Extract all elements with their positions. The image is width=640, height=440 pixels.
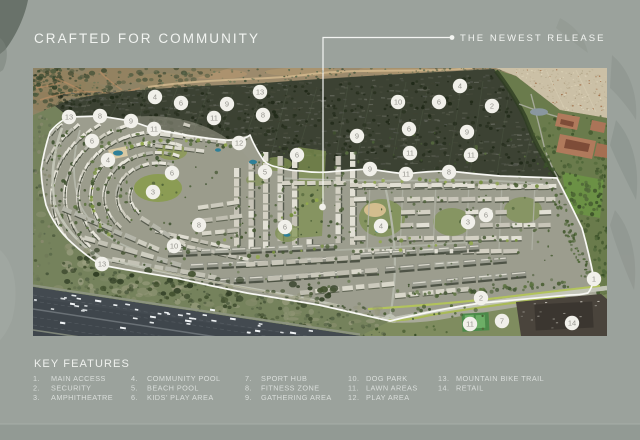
svg-text:8.: 8. xyxy=(245,384,252,393)
svg-text:BEACH POOL: BEACH POOL xyxy=(147,384,199,393)
svg-text:9.: 9. xyxy=(245,393,252,402)
svg-text:4: 4 xyxy=(153,93,157,102)
svg-text:6: 6 xyxy=(283,223,287,232)
svg-text:6: 6 xyxy=(437,98,441,107)
svg-text:12: 12 xyxy=(235,139,243,148)
svg-text:RETAIL: RETAIL xyxy=(456,384,484,393)
svg-text:SECURITY: SECURITY xyxy=(51,384,92,393)
svg-text:13.: 13. xyxy=(438,374,450,383)
svg-text:6: 6 xyxy=(484,211,488,220)
svg-text:11: 11 xyxy=(210,114,218,123)
svg-text:KIDS’ PLAY AREA: KIDS’ PLAY AREA xyxy=(147,393,214,402)
svg-text:1.: 1. xyxy=(33,374,40,383)
svg-text:6: 6 xyxy=(90,137,94,146)
svg-text:6: 6 xyxy=(170,169,174,178)
svg-text:10: 10 xyxy=(394,98,402,107)
svg-text:CRAFTED FOR COMMUNITY: CRAFTED FOR COMMUNITY xyxy=(34,31,260,46)
svg-text:GATHERING AREA: GATHERING AREA xyxy=(261,393,332,402)
svg-text:4: 4 xyxy=(379,222,383,231)
svg-text:3: 3 xyxy=(466,218,470,227)
svg-text:4: 4 xyxy=(458,82,462,91)
svg-text:2: 2 xyxy=(479,294,483,303)
svg-text:13: 13 xyxy=(256,88,264,97)
svg-text:11: 11 xyxy=(406,149,414,158)
svg-text:6.: 6. xyxy=(131,393,138,402)
svg-text:4: 4 xyxy=(106,156,110,165)
svg-text:LAWN AREAS: LAWN AREAS xyxy=(366,384,418,393)
svg-text:7.: 7. xyxy=(245,374,252,383)
svg-text:AMPHITHEATRE: AMPHITHEATRE xyxy=(51,393,113,402)
svg-text:MOUNTAIN BIKE TRAIL: MOUNTAIN BIKE TRAIL xyxy=(456,374,544,383)
svg-text:KEY FEATURES: KEY FEATURES xyxy=(34,358,130,370)
svg-text:11: 11 xyxy=(402,170,410,179)
svg-text:5: 5 xyxy=(263,168,267,177)
svg-text:1: 1 xyxy=(592,275,596,284)
svg-text:11: 11 xyxy=(466,320,474,329)
svg-text:3: 3 xyxy=(151,188,155,197)
svg-text:9: 9 xyxy=(225,100,229,109)
svg-text:13: 13 xyxy=(65,113,73,122)
svg-text:10: 10 xyxy=(170,242,178,251)
svg-text:11: 11 xyxy=(467,151,475,160)
svg-text:COMMUNITY POOL: COMMUNITY POOL xyxy=(147,374,220,383)
svg-text:2: 2 xyxy=(490,102,494,111)
svg-text:12.: 12. xyxy=(348,393,360,402)
svg-text:7: 7 xyxy=(500,317,504,326)
svg-text:THE NEWEST RELEASE: THE NEWEST RELEASE xyxy=(460,33,605,44)
svg-text:8: 8 xyxy=(447,168,451,177)
svg-text:9: 9 xyxy=(129,117,133,126)
svg-text:11.: 11. xyxy=(348,384,359,393)
svg-text:5.: 5. xyxy=(131,384,138,393)
svg-text:6: 6 xyxy=(407,125,411,134)
svg-text:3.: 3. xyxy=(33,393,40,402)
svg-text:4.: 4. xyxy=(131,374,138,383)
svg-text:14.: 14. xyxy=(438,384,450,393)
svg-text:8: 8 xyxy=(261,111,265,120)
svg-text:10.: 10. xyxy=(348,374,360,383)
svg-text:8: 8 xyxy=(197,221,201,230)
svg-text:9: 9 xyxy=(368,165,372,174)
svg-text:6: 6 xyxy=(295,151,299,160)
svg-text:MAIN ACCESS: MAIN ACCESS xyxy=(51,374,106,383)
svg-text:6: 6 xyxy=(179,99,183,108)
svg-text:9: 9 xyxy=(355,132,359,141)
svg-text:13: 13 xyxy=(98,260,106,269)
svg-text:2.: 2. xyxy=(33,384,40,393)
svg-text:DOG PARK: DOG PARK xyxy=(366,374,408,383)
svg-text:FITNESS ZONE: FITNESS ZONE xyxy=(261,384,320,393)
svg-text:14: 14 xyxy=(568,319,576,328)
svg-text:SPORT HUB: SPORT HUB xyxy=(261,374,307,383)
svg-text:PLAY AREA: PLAY AREA xyxy=(366,393,410,402)
svg-text:8: 8 xyxy=(98,112,102,121)
svg-text:11: 11 xyxy=(150,125,158,134)
svg-text:9: 9 xyxy=(465,128,469,137)
